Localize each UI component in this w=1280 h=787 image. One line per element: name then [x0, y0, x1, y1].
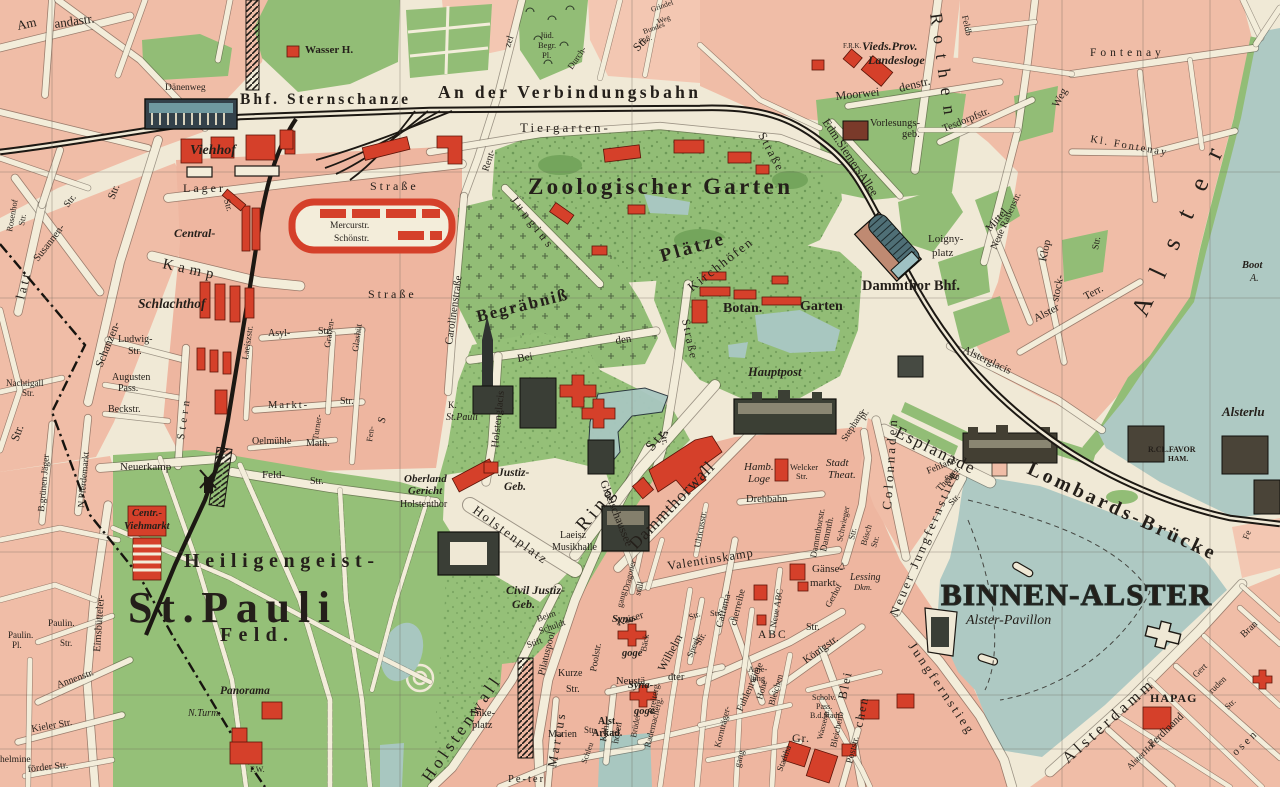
- svg-text:N.Turm.: N.Turm.: [187, 708, 221, 719]
- svg-text:geb.: geb.: [902, 129, 920, 140]
- svg-text:Feld-: Feld-: [262, 469, 286, 481]
- svg-text:Pe-ter: Pe-ter: [508, 774, 545, 785]
- svg-text:Str.: Str.: [16, 213, 28, 226]
- svg-text:Dänenweg: Dänenweg: [165, 83, 206, 93]
- svg-text:Vorlesungs-: Vorlesungs-: [870, 118, 920, 129]
- svg-text:Alsterlu: Alsterlu: [1221, 404, 1265, 419]
- svg-text:Gr.: Gr.: [792, 731, 810, 745]
- svg-text:Hauptpost: Hauptpost: [747, 365, 802, 379]
- svg-text:Viehhof: Viehhof: [190, 143, 237, 158]
- svg-text:F.W.: F.W.: [250, 765, 265, 774]
- svg-text:A.: A.: [1249, 273, 1259, 284]
- svg-text:Loge: Loge: [747, 473, 770, 485]
- svg-text:Arkad.: Arkad.: [592, 728, 623, 739]
- svg-text:Landesloge: Landesloge: [867, 53, 925, 67]
- svg-text:Str.: Str.: [796, 471, 808, 481]
- svg-text:Vieds.Prov.: Vieds.Prov.: [862, 39, 918, 53]
- svg-text:Pass.: Pass.: [118, 383, 138, 394]
- svg-text:platz: platz: [472, 720, 493, 731]
- svg-text:Kurze: Kurze: [558, 668, 583, 679]
- svg-text:F.R.K.: F.R.K.: [843, 42, 862, 50]
- svg-text:St.Pauli: St.Pauli: [446, 412, 478, 423]
- svg-text:platz: platz: [932, 247, 953, 259]
- svg-text:Begr.: Begr.: [538, 40, 556, 50]
- svg-text:Str.: Str.: [710, 608, 722, 618]
- svg-text:Ludwig-: Ludwig-: [118, 334, 152, 345]
- svg-text:Paulin.: Paulin.: [8, 630, 33, 640]
- svg-text:Str.: Str.: [128, 346, 142, 357]
- svg-text:Boot: Boot: [1241, 260, 1264, 271]
- svg-text:den: den: [615, 333, 633, 347]
- svg-text:Geb.: Geb.: [504, 481, 526, 493]
- svg-text:Straße: Straße: [368, 287, 417, 301]
- svg-text:Jüd.: Jüd.: [540, 30, 554, 40]
- svg-text:BINNEN-ALSTER: BINNEN-ALSTER: [941, 577, 1212, 612]
- svg-text:Central-: Central-: [174, 226, 215, 240]
- svg-text:Geb.: Geb.: [512, 597, 535, 611]
- svg-text:HAM.: HAM.: [1168, 454, 1188, 463]
- svg-text:Fontenay: Fontenay: [1090, 47, 1165, 59]
- svg-text:Straße: Straße: [370, 179, 419, 193]
- svg-text:Augusten: Augusten: [112, 372, 150, 383]
- svg-text:Hamb.: Hamb.: [743, 461, 774, 473]
- svg-text:Dammthor Bhf.: Dammthor Bhf.: [862, 278, 960, 294]
- svg-text:An der Verbindungsbahn: An der Verbindungsbahn: [438, 82, 698, 102]
- svg-text:Lager: Lager: [183, 181, 226, 195]
- svg-text:ABC: ABC: [758, 629, 788, 641]
- svg-text:Viehmarkt: Viehmarkt: [124, 521, 171, 532]
- svg-text:Drehbahn: Drehbahn: [746, 494, 788, 505]
- svg-text:Justiz-: Justiz-: [497, 467, 529, 479]
- svg-text:Asyl-: Asyl-: [268, 328, 290, 339]
- svg-text:Enke-: Enke-: [470, 708, 496, 719]
- svg-text:Str.: Str.: [22, 388, 34, 398]
- svg-text:Alster-Pavillon: Alster-Pavillon: [965, 613, 1051, 628]
- svg-text:R.CL.FAVOR: R.CL.FAVOR: [1148, 445, 1196, 454]
- svg-text:Scholv.: Scholv.: [812, 693, 836, 702]
- svg-text:Theat.: Theat.: [828, 469, 856, 481]
- svg-text:dter: dter: [668, 672, 685, 683]
- svg-text:Mercurstr.: Mercurstr.: [330, 221, 369, 231]
- svg-text:Markt-: Markt-: [268, 400, 309, 411]
- svg-text:K.: K.: [448, 400, 457, 410]
- svg-text:Paulin.: Paulin.: [48, 619, 75, 629]
- svg-text:HAPAG: HAPAG: [1150, 691, 1197, 705]
- svg-text:Gericht: Gericht: [408, 485, 443, 497]
- svg-text:Oelmühle: Oelmühle: [252, 436, 292, 447]
- svg-text:Panorama: Panorama: [220, 685, 270, 697]
- svg-text:Botan.: Botan.: [723, 301, 762, 316]
- svg-text:Schönstr.: Schönstr.: [334, 234, 369, 244]
- svg-text:Str.: Str.: [806, 622, 820, 633]
- svg-text:Musikhalle: Musikhalle: [552, 542, 598, 553]
- svg-text:lung: lung: [750, 673, 766, 683]
- svg-text:Str.: Str.: [310, 476, 324, 487]
- svg-text:Str.: Str.: [340, 396, 354, 407]
- svg-text:Beckstr.: Beckstr.: [108, 404, 141, 415]
- svg-text:Syna-: Syna-: [612, 614, 638, 625]
- svg-text:Tiergarten-: Tiergarten-: [520, 120, 611, 135]
- svg-text:Stadt: Stadt: [826, 457, 850, 469]
- svg-text:Str.: Str.: [60, 638, 72, 648]
- svg-text:Pl.: Pl.: [542, 50, 551, 60]
- svg-text:Neuerkamp: Neuerkamp: [120, 461, 172, 473]
- svg-text:Garten: Garten: [800, 299, 843, 314]
- svg-text:△: △: [837, 560, 845, 570]
- svg-text:Holstenthor: Holstenthor: [400, 499, 448, 510]
- svg-text:Loigny-: Loigny-: [928, 233, 964, 245]
- svg-text:Civil Justiz-: Civil Justiz-: [506, 583, 565, 597]
- svg-text:helmine: helmine: [0, 755, 31, 765]
- svg-text:Str.: Str.: [566, 684, 580, 695]
- svg-text:Centr.-: Centr.-: [132, 508, 163, 519]
- svg-text:Nachtigall: Nachtigall: [6, 378, 44, 388]
- svg-text:Pl.: Pl.: [12, 640, 22, 650]
- svg-text:Dkm.: Dkm.: [853, 582, 872, 592]
- svg-text:Oberland: Oberland: [404, 473, 447, 485]
- svg-text:Schlachthof: Schlachthof: [138, 296, 207, 311]
- svg-text:Wasser H.: Wasser H.: [305, 44, 353, 56]
- svg-text:Alst.: Alst.: [598, 716, 618, 727]
